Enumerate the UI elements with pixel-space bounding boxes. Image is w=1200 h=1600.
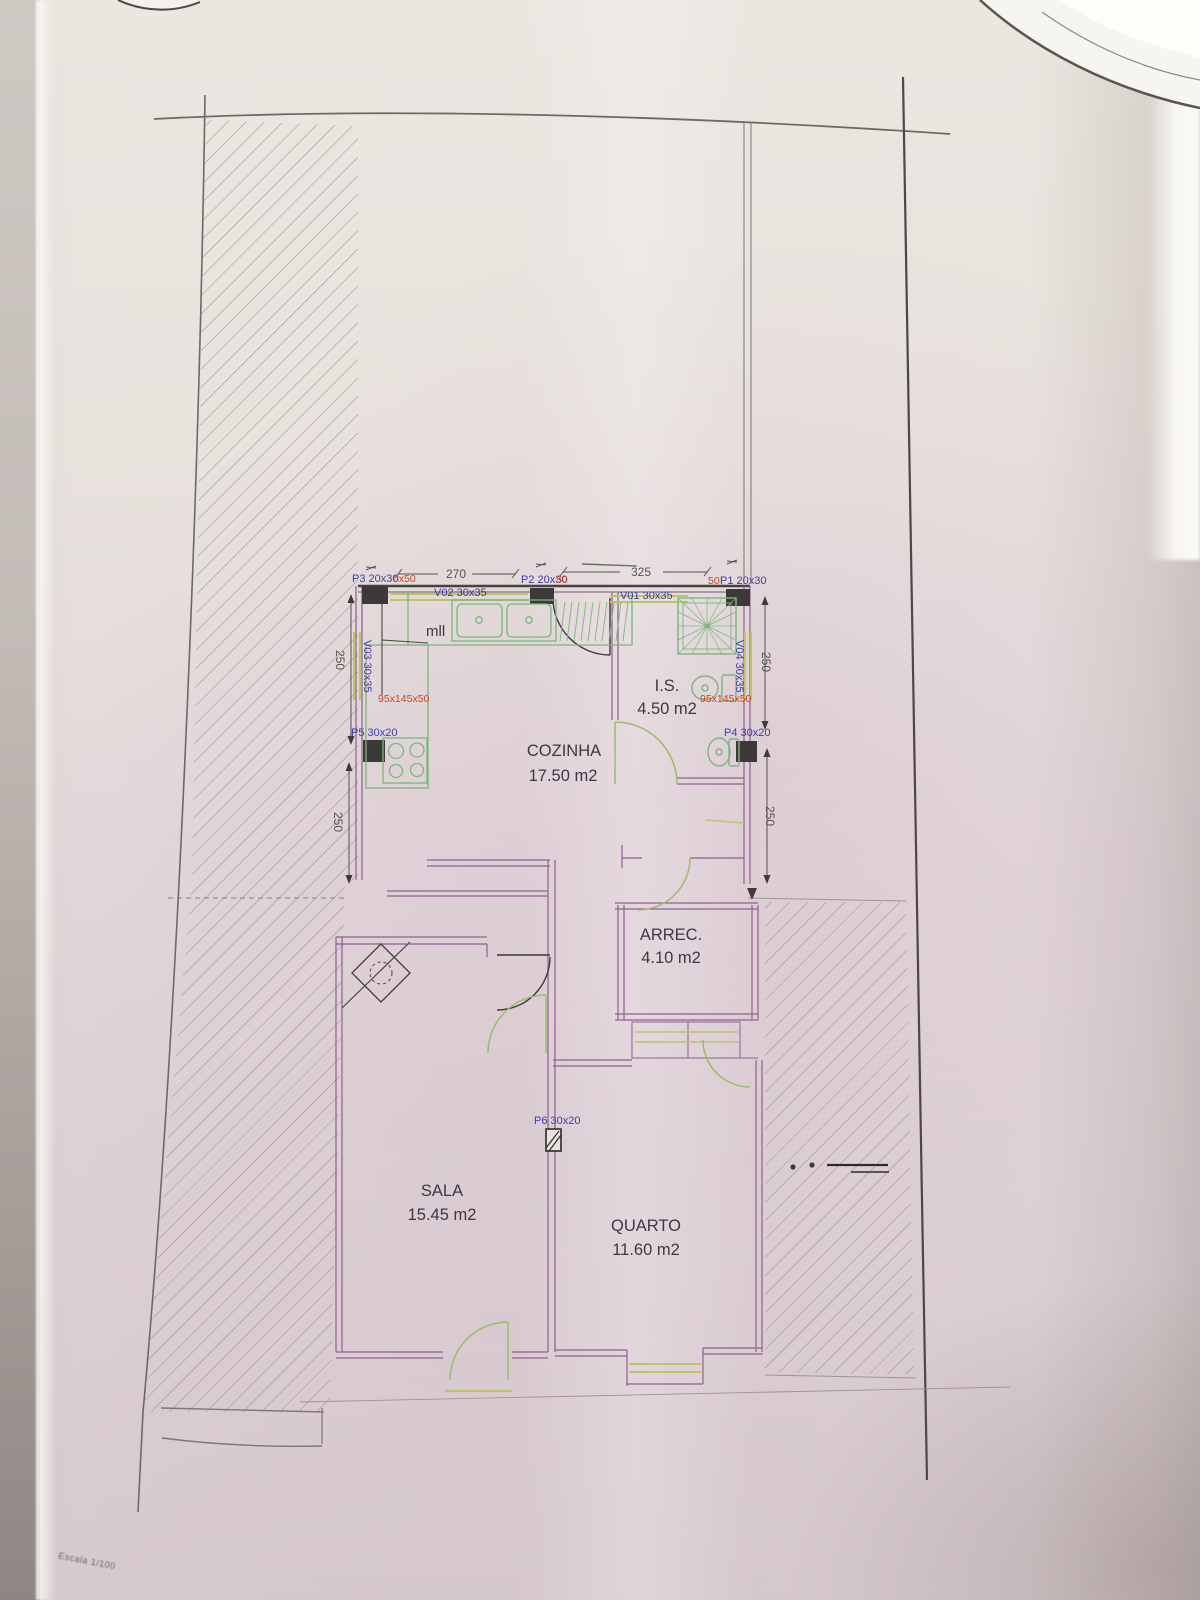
room-area-cozinha: 17.50 m2 [529,767,598,785]
label-v02: V02 30x35 [434,587,487,599]
left-hatch-area [143,120,358,1412]
room-label-arrec: ARREC. [640,926,702,944]
room-area-quarto: 11.60 m2 [612,1241,680,1259]
label-p1: P1 20x30 [720,575,766,587]
dim-right-upper: 250 [759,652,773,672]
label-mll: mll [426,623,445,640]
label-v03: V03 30x35 [361,640,373,693]
floor-plan-photo: P3 20x30 0x50 P2 20x30 50 50 P1 20x30 V0… [0,0,1200,1600]
fireplace [342,942,410,1008]
label-p2-red: 50 [556,574,568,586]
opening-labels: P3 20x30 0x50 P2 20x30 50 50 P1 20x30 V0… [351,573,770,1127]
dimension-lines [349,560,767,882]
counter-inner-edge [382,602,428,695]
label-left-fixture: 95x145x50 [378,693,430,705]
dim-left-lower: 250 [331,812,345,832]
room-label-sala: SALA [421,1182,463,1200]
label-v01: V01 30x35 [620,590,673,602]
room-label-cozinha: COZINHA [527,742,601,760]
room-label-quarto: QUARTO [611,1217,681,1235]
dim-270: 270 [446,567,466,581]
label-p3: P3 20x30 [352,573,398,585]
label-p6: P6 30x20 [534,1115,580,1127]
pillar-p6 [546,1129,561,1151]
label-right-fixture: 95x145x50 [700,693,752,705]
dim-325: 325 [631,565,651,579]
label-p5: P5 30x20 [351,727,397,739]
green-doors [450,722,750,1380]
room-label-is: I.S. [655,677,680,695]
page-curl-top-right [980,0,1200,110]
room-area-sala: 15.45 m2 [408,1206,477,1224]
stove [383,738,427,783]
bidet-sink [708,738,739,766]
page-curl-top-left [116,0,200,10]
site-plan-svg: P3 20x30 0x50 P2 20x30 50 50 P1 20x30 V0… [0,0,1200,1600]
room-area-is: 4.50 m2 [637,700,697,718]
dim-left-upper: 250 [333,650,347,670]
dim-right-lower: 250 [763,806,777,826]
house-walls [336,586,763,1386]
label-v04: V04 30x35 [733,640,745,693]
pillars [362,586,757,762]
right-hatch-area [747,888,916,1378]
dark-doors [497,598,610,1010]
label-p1-red: 50 [708,575,720,587]
shower [678,598,736,654]
label-p3-red: 0x50 [393,573,416,585]
label-p4: P4 30x20 [724,727,770,739]
room-area-arrec: 4.10 m2 [641,949,701,967]
